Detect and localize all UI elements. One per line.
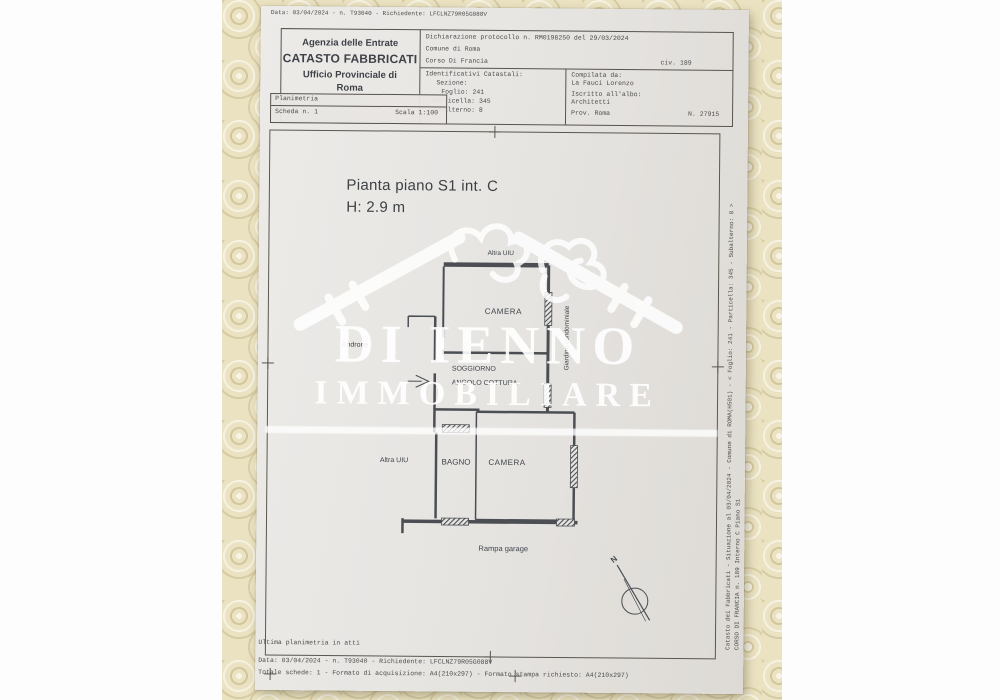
plan-title: Pianta piano S1 int. C [346, 175, 498, 198]
room-label-bagno: BAGNO [429, 457, 483, 466]
plan-title-block: Pianta piano S1 int. C H: 2.9 m [346, 175, 498, 220]
tablecloth-background: Data: 03/04/2024 - n. T93040 - Richieden… [222, 0, 782, 700]
room-label-altra-uiu-bottom: Altra UIU [364, 457, 424, 465]
watermark-subtitle: IMMOBILIARE [272, 374, 702, 416]
room-label-camera-bottom: CAMERA [477, 458, 537, 468]
watermark-name: DI IENNO [273, 312, 704, 378]
plan-ceiling-height: H: 2.9 m [346, 197, 498, 220]
footer-ultima-planimetria: Ultima planimetria in atti [258, 639, 359, 648]
room-label-altra-uiu-top: Altra UIU [471, 250, 531, 258]
room-label-rampa-garage: Rampa garage [473, 544, 533, 554]
north-compass [617, 565, 650, 621]
cadastral-document-sheet: Data: 03/04/2024 - n. T93040 - Richieden… [255, 6, 749, 694]
